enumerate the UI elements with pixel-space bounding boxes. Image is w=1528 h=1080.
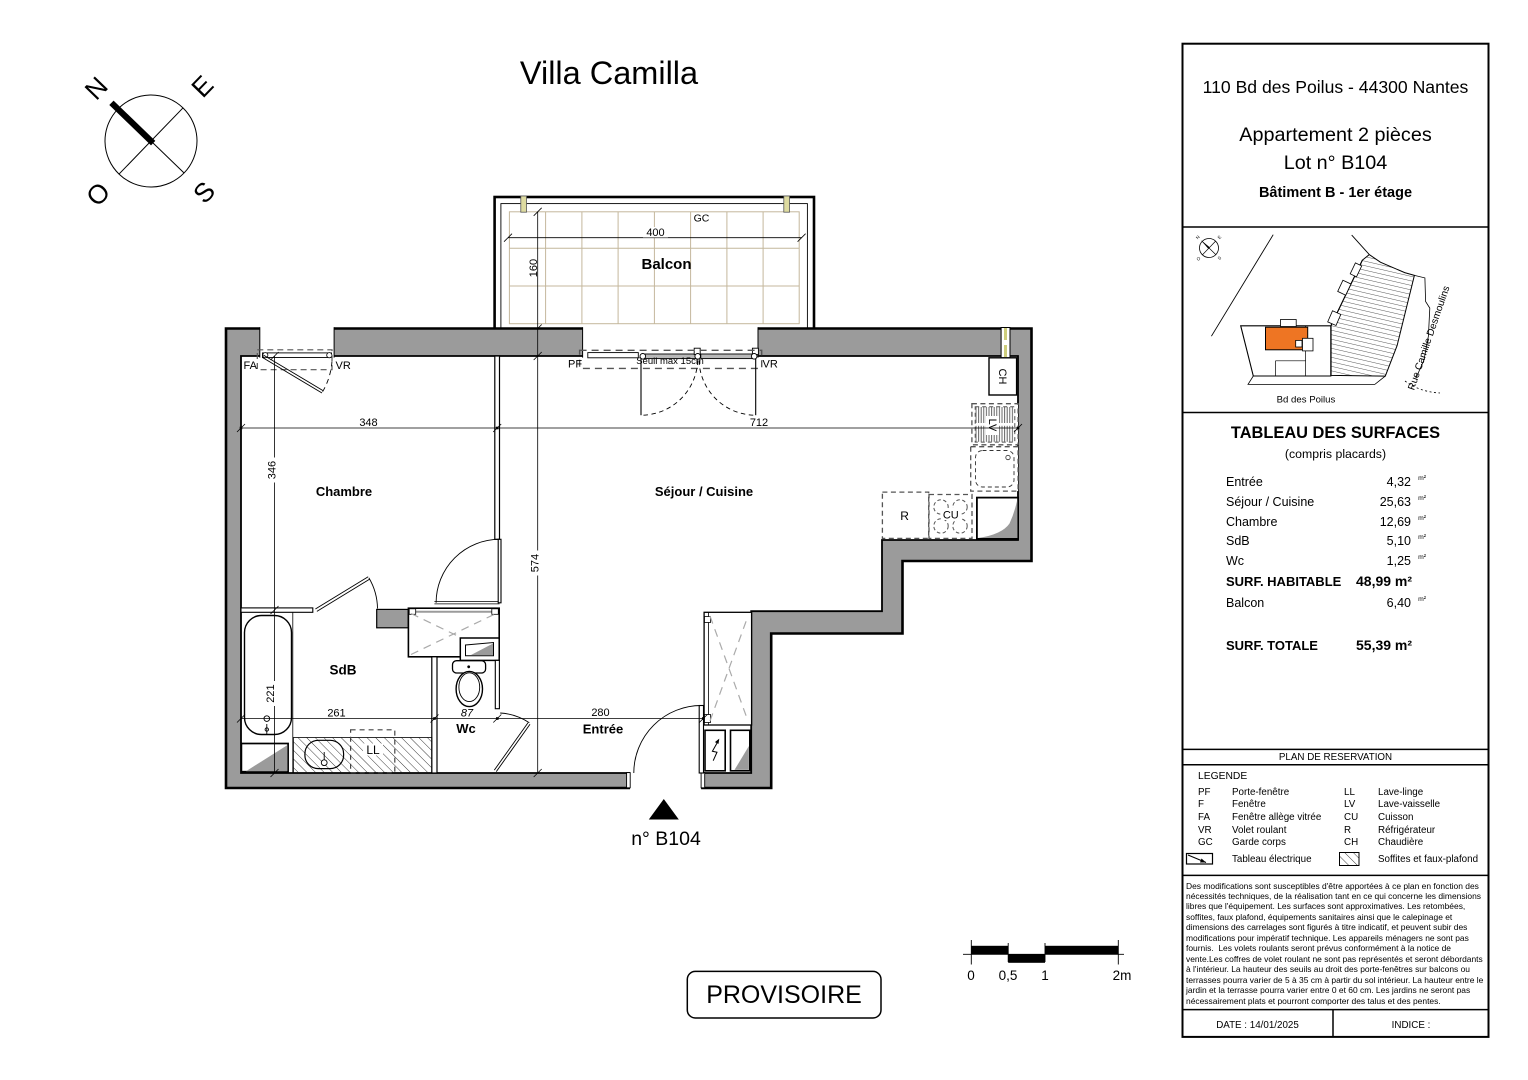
- svg-text:GC: GC: [694, 213, 710, 225]
- svg-text:R: R: [900, 509, 909, 523]
- svg-text:Balcon: Balcon: [641, 256, 691, 273]
- svg-text:Villa Camilla: Villa Camilla: [520, 55, 699, 91]
- svg-text:348: 348: [359, 417, 377, 429]
- svg-text:221: 221: [265, 684, 277, 702]
- svg-text:LL: LL: [366, 743, 380, 757]
- svg-text:PROVISOIRE: PROVISOIRE: [706, 981, 862, 1009]
- svg-text:PF: PF: [568, 359, 582, 371]
- svg-text:O: O: [1196, 255, 1202, 261]
- svg-text:Bd des Poilus: Bd des Poilus: [1277, 395, 1336, 406]
- svg-text:Chambre: Chambre: [316, 484, 372, 499]
- svg-text:O: O: [80, 176, 116, 212]
- svg-text:Wc: Wc: [456, 721, 476, 736]
- svg-text:574: 574: [530, 554, 542, 572]
- svg-text:2m: 2m: [1113, 968, 1132, 983]
- svg-text:0: 0: [967, 968, 975, 983]
- svg-text:VR: VR: [763, 359, 778, 371]
- svg-text:n° B104: n° B104: [631, 828, 701, 850]
- svg-text:Rue Camille Desmoulins: Rue Camille Desmoulins: [1406, 285, 1452, 392]
- svg-text:400: 400: [646, 227, 664, 239]
- svg-text:VR: VR: [336, 360, 351, 372]
- svg-text:FA: FA: [244, 360, 258, 372]
- svg-text:CH: CH: [996, 369, 1008, 385]
- svg-text:Entrée: Entrée: [583, 722, 623, 737]
- svg-text:160: 160: [528, 259, 540, 277]
- svg-text:Seuil max 15cm: Seuil max 15cm: [636, 356, 704, 367]
- svg-text:N: N: [1195, 234, 1201, 240]
- svg-text:0,5: 0,5: [999, 968, 1018, 983]
- svg-text:1: 1: [1041, 968, 1049, 983]
- svg-text:712: 712: [750, 417, 768, 429]
- svg-text:Séjour / Cuisine: Séjour / Cuisine: [655, 484, 753, 499]
- svg-text:CU: CU: [943, 510, 959, 522]
- svg-text:E: E: [185, 70, 219, 104]
- svg-text:N: N: [79, 71, 114, 106]
- svg-text:346: 346: [267, 461, 279, 479]
- svg-text:87: 87: [461, 708, 474, 720]
- svg-text:LV: LV: [986, 419, 998, 432]
- svg-text:SdB: SdB: [330, 663, 357, 678]
- svg-text:S: S: [187, 176, 221, 210]
- svg-text:E: E: [1217, 234, 1223, 240]
- svg-text:280: 280: [591, 707, 609, 719]
- svg-text:261: 261: [327, 708, 345, 720]
- svg-text:S: S: [1217, 255, 1223, 261]
